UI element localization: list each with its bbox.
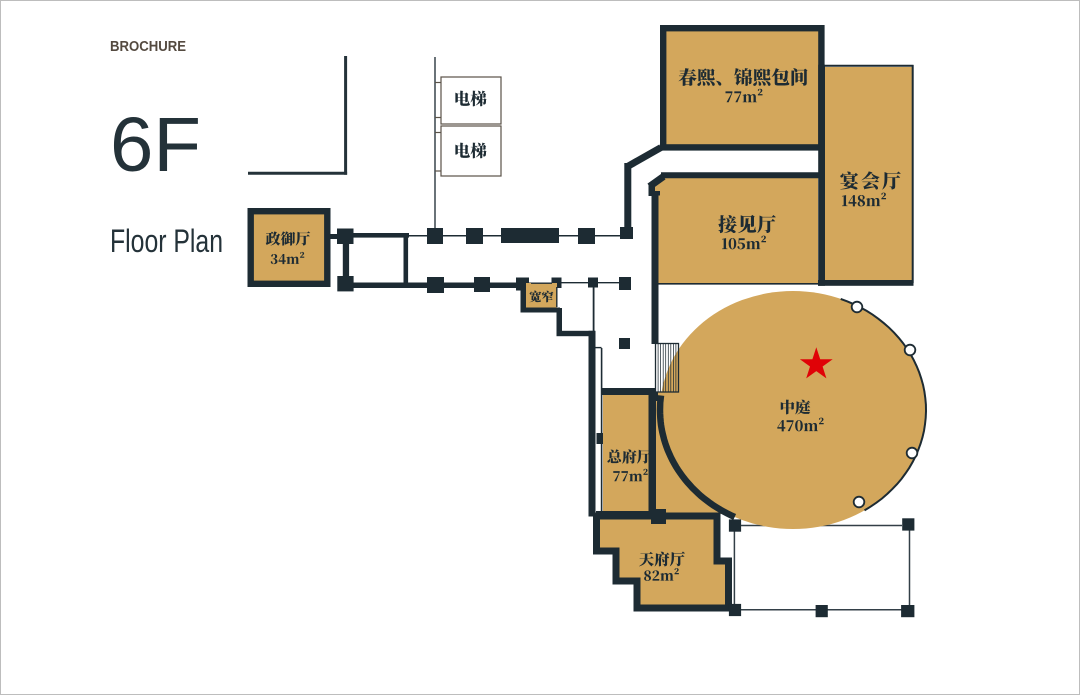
svg-text:6F: 6F [110, 102, 201, 188]
svg-text:Floor Plan: Floor Plan [110, 223, 223, 259]
svg-text:BROCHURE: BROCHURE [110, 39, 186, 55]
